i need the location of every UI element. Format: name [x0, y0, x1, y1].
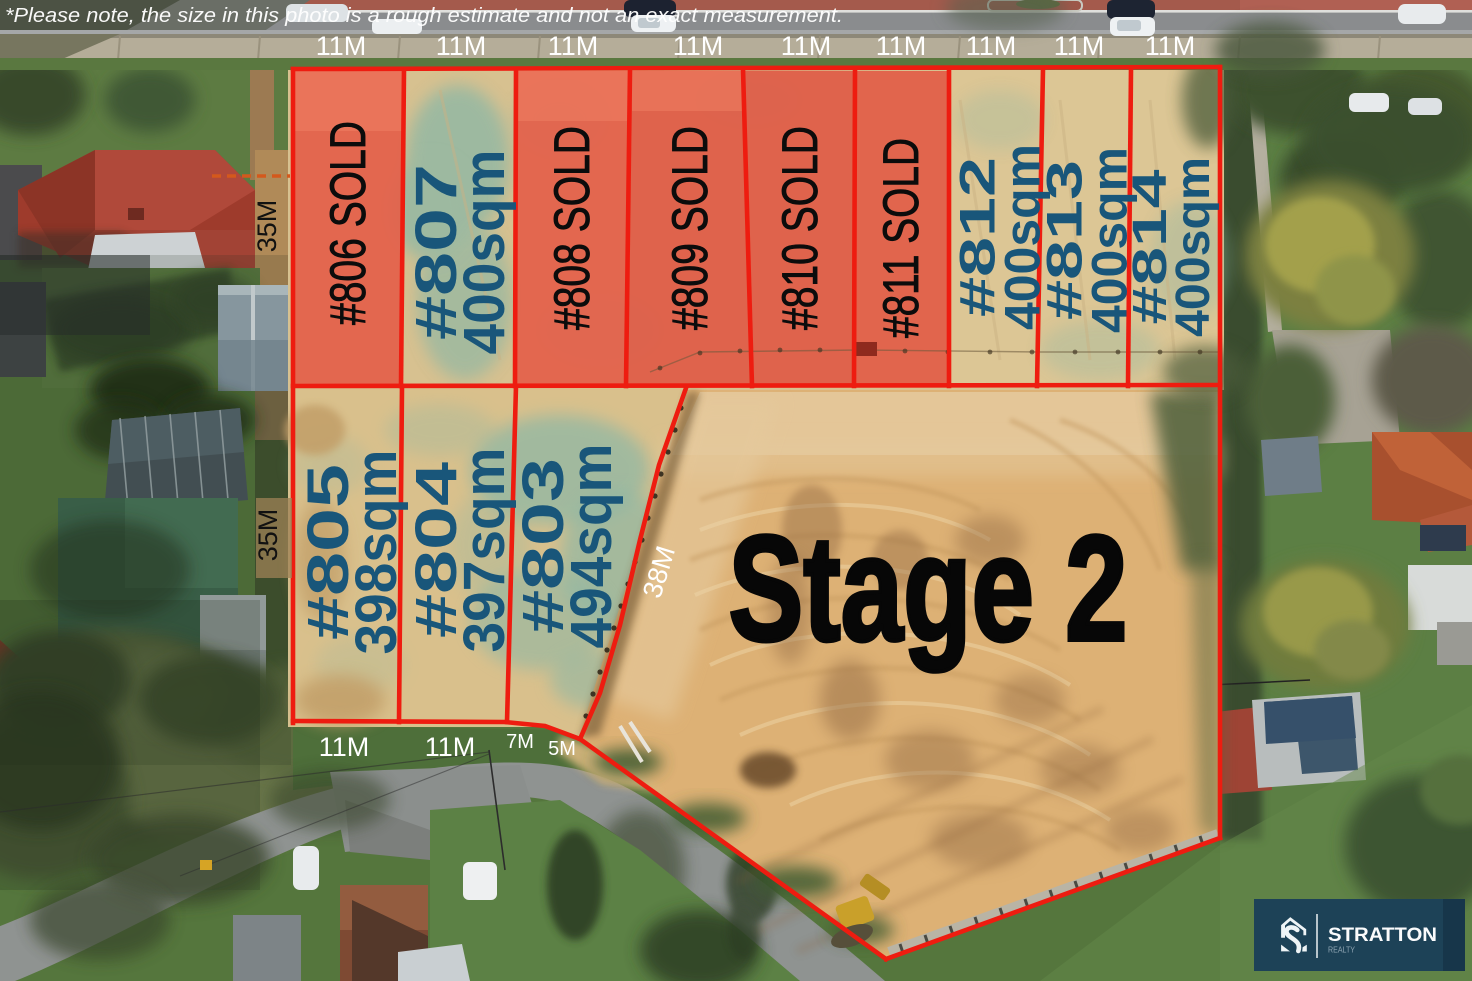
svg-text:Stage 2: Stage 2 — [729, 504, 1128, 672]
svg-text:397sqm: 397sqm — [452, 448, 517, 653]
svg-text:#806 SOLD: #806 SOLD — [320, 121, 376, 325]
svg-text:11M: 11M — [316, 31, 367, 61]
svg-text:#810 SOLD: #810 SOLD — [772, 126, 828, 330]
svg-text:35M: 35M — [252, 200, 282, 253]
svg-text:STRATTON: STRATTON — [1328, 924, 1437, 946]
svg-text:11M: 11M — [548, 31, 599, 61]
svg-text:#808 SOLD: #808 SOLD — [544, 126, 600, 330]
svg-text:398sqm: 398sqm — [344, 450, 409, 655]
svg-text:#811 SOLD: #811 SOLD — [873, 138, 929, 338]
svg-text:11M: 11M — [319, 732, 370, 762]
svg-text:11M: 11M — [1145, 31, 1196, 61]
svg-text:11M: 11M — [966, 31, 1017, 61]
svg-text:REALTY: REALTY — [1328, 946, 1356, 955]
svg-text:11M: 11M — [1054, 31, 1105, 61]
svg-text:#809 SOLD: #809 SOLD — [662, 126, 718, 330]
svg-text:35M: 35M — [253, 509, 283, 562]
svg-text:400sqm: 400sqm — [452, 150, 517, 355]
svg-text:11M: 11M — [425, 732, 476, 762]
svg-text:7M: 7M — [506, 731, 534, 753]
svg-text:11M: 11M — [781, 31, 832, 61]
svg-text:*Please note, the size in this: *Please note, the size in this photo is … — [5, 4, 843, 27]
svg-text:5M: 5M — [548, 738, 576, 760]
svg-text:11M: 11M — [876, 31, 927, 61]
svg-text:400sqm: 400sqm — [1167, 157, 1220, 337]
svg-text:494sqm: 494sqm — [559, 444, 624, 649]
svg-text:11M: 11M — [436, 31, 487, 61]
svg-text:11M: 11M — [673, 31, 724, 61]
